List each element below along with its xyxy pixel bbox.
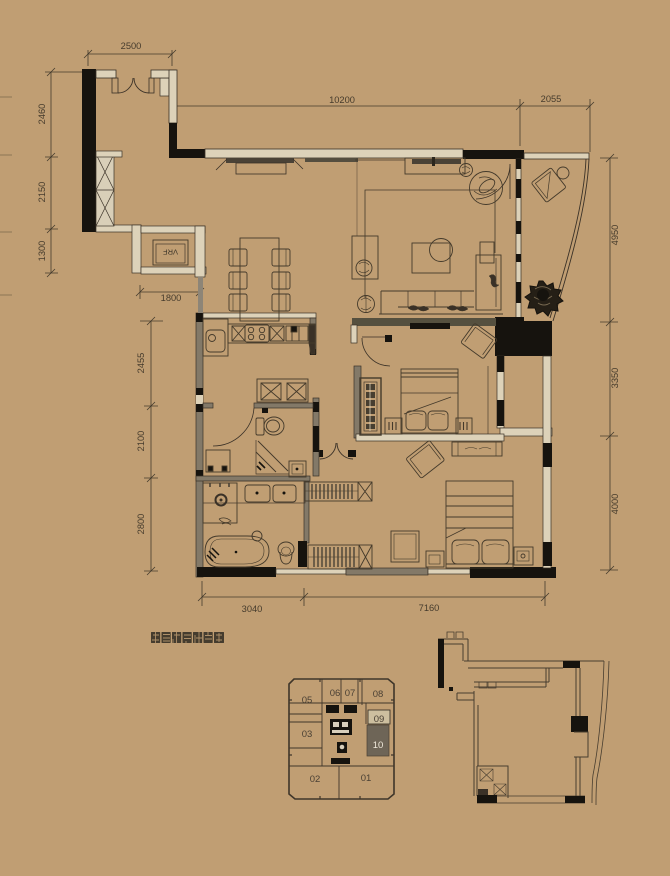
svg-text:09: 09: [374, 714, 385, 725]
svg-text:2800: 2800: [136, 514, 146, 535]
svg-text:VRF: VRF: [163, 248, 178, 257]
svg-text:2460: 2460: [37, 104, 47, 125]
svg-text:08: 08: [373, 689, 384, 700]
svg-text:2455: 2455: [136, 353, 146, 374]
svg-text:2150: 2150: [37, 182, 47, 203]
svg-text:3350: 3350: [610, 368, 620, 389]
svg-text:2100: 2100: [136, 431, 146, 452]
svg-text:1300: 1300: [37, 241, 47, 262]
svg-text:06: 06: [330, 688, 341, 699]
svg-text:2500: 2500: [121, 41, 142, 51]
svg-text:10200: 10200: [329, 95, 355, 105]
svg-text:7160: 7160: [419, 603, 440, 613]
svg-text:05: 05: [302, 695, 313, 706]
svg-text:4950: 4950: [610, 225, 620, 246]
svg-text:10: 10: [373, 740, 384, 751]
svg-text:03: 03: [302, 729, 313, 740]
svg-text:3040: 3040: [242, 604, 263, 614]
svg-text:01: 01: [361, 773, 372, 784]
svg-text:4000: 4000: [610, 494, 620, 515]
svg-text:07: 07: [345, 688, 356, 699]
svg-text:1800: 1800: [161, 293, 182, 303]
svg-text:2055: 2055: [541, 94, 562, 104]
svg-text:02: 02: [310, 774, 321, 785]
